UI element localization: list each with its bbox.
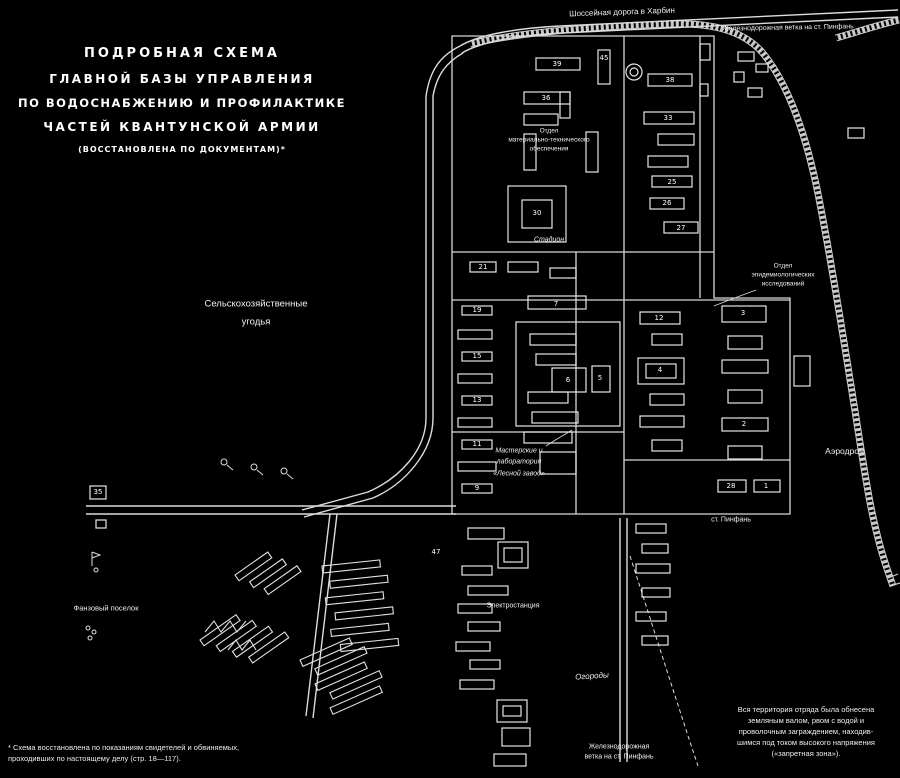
map-label-dept-supply-1: Отдел	[540, 128, 559, 135]
building-number-28: 28	[727, 482, 736, 490]
map-title: ПОДРОБНАЯ СХЕМА ГЛАВНОЙ БАЗЫ УПРАВЛЕНИЯ …	[8, 46, 356, 154]
map-label-railway-bottom-2: ветка на ст. Пинфань	[584, 754, 653, 761]
building-number-33: 33	[664, 114, 673, 122]
title-line-5: (ВОССТАНОВЛЕНА ПО ДОКУМЕНТАМ)*	[8, 145, 356, 154]
flag-symbol	[92, 552, 100, 566]
building-number-7: 7	[554, 300, 558, 308]
title-line-3: ПО ВОДОСНАБЖЕНИЮ И ПРОФИЛАКТИКЕ	[8, 96, 356, 110]
building-number-25: 25	[668, 178, 677, 186]
building-number-5: 5	[598, 374, 602, 382]
building-number-3: 3	[741, 309, 745, 317]
title-line-2: ГЛАВНОЙ БАЗЫ УПРАВЛЕНИЯ	[8, 72, 356, 86]
map-label-station-pinfan: ст. Пинфань	[711, 517, 751, 524]
building-number-9: 9	[475, 484, 479, 492]
map-label-dept-research-3: исследований	[762, 281, 805, 288]
map-label-workshops-1: Мастерские и	[495, 448, 542, 455]
perimeter-annotation: Вся территория отряда была обнесена земл…	[704, 704, 900, 759]
building-number-11: 11	[473, 440, 482, 448]
railway-band	[470, 20, 900, 586]
building-number-45: 45	[600, 54, 609, 62]
building-number-19: 19	[473, 306, 482, 314]
building-number-1: 1	[764, 482, 768, 490]
annotation-line-4: шимся под током высокого напряжения	[704, 737, 900, 748]
title-line-1: ПОДРОБНАЯ СХЕМА	[8, 46, 356, 61]
annotation-line-2: земляным валом, рвом с водой и	[704, 715, 900, 726]
building-number-21: 21	[479, 263, 488, 271]
building-number-13: 13	[473, 396, 482, 404]
map-label-dept-supply-3: обеспечения	[530, 146, 569, 153]
compound-fence	[452, 36, 790, 514]
map-label-dept-supply-2: материально-технического	[508, 137, 589, 144]
map-canvas: ПОДРОБНАЯ СХЕМА ГЛАВНОЙ БАЗЫ УПРАВЛЕНИЯ …	[0, 0, 900, 778]
annotation-line-5: («запретная зона»).	[704, 748, 900, 759]
building-number-26: 26	[663, 199, 672, 207]
title-line-4: ЧАСТЕЙ КВАНТУНСКОЙ АРМИИ	[8, 120, 356, 134]
map-label-farmland-1: Сельскохозяйственные	[204, 299, 307, 310]
map-label-stadium: Стадион	[534, 237, 564, 244]
building-number-47: 47	[432, 548, 441, 556]
building-number-4: 4	[658, 366, 662, 374]
map-label-farmland-2: угодья	[242, 317, 271, 328]
point-symbols	[86, 459, 293, 640]
map-footnote: * Схема восстановлена по показаниям свид…	[8, 742, 348, 764]
map-label-dept-research-1: Отдел	[774, 263, 793, 270]
footnote-line-1: * Схема восстановлена по показаниям свид…	[8, 742, 348, 753]
building-number-36: 36	[542, 94, 551, 102]
building-number-2: 2	[742, 420, 746, 428]
map-label-railway-bottom-1: Железнодорожная	[589, 744, 650, 751]
map-label-workshops-3: «Лесной завод»	[493, 471, 545, 478]
building-number-6: 6	[566, 376, 570, 384]
building-number-38: 38	[666, 76, 675, 84]
building-number-15: 15	[473, 352, 482, 360]
building-number-35: 35	[94, 488, 103, 496]
barracks-rows	[200, 543, 399, 718]
annotation-line-1: Вся территория отряда была обнесена	[704, 704, 900, 715]
map-label-workshops-2: лаборатория	[497, 459, 542, 466]
building-number-27: 27	[677, 224, 686, 232]
map-label-dept-research-2: эпидемиологических	[752, 272, 815, 279]
map-label-power-station: Электростанция	[486, 603, 539, 610]
building-number-30: 30	[533, 209, 542, 217]
building-number-12: 12	[655, 314, 664, 322]
annotation-line-3: проволочным заграждением, находив-	[704, 726, 900, 737]
map-label-airfield: Аэродром	[825, 446, 865, 456]
main-square-building	[516, 322, 620, 426]
building-number-39: 39	[553, 60, 562, 68]
map-label-fanza-village: Фанзовый поселок	[73, 604, 138, 613]
footnote-line-2: проходивших по настоящему делу (стр. 18—…	[8, 753, 348, 764]
